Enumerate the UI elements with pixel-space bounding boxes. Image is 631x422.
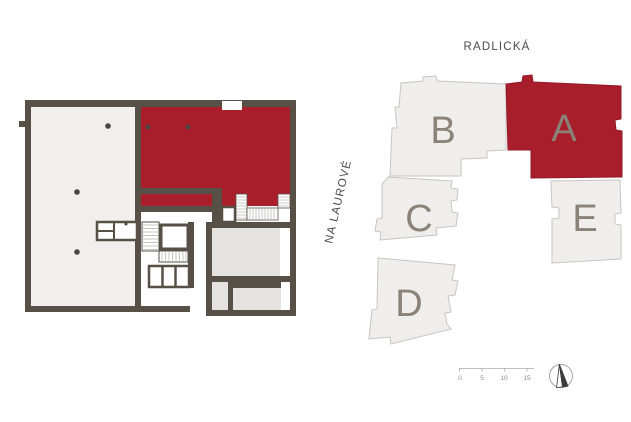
north-arrow-icon	[548, 363, 574, 389]
scale-tick-0: 0	[458, 375, 462, 382]
building-e-label: E	[572, 198, 597, 240]
elevator-shaft	[161, 225, 188, 249]
storage-cells	[149, 266, 189, 287]
scale-tick-15: 15	[523, 375, 531, 382]
scale-bar: 0 5 10 15	[458, 369, 534, 383]
building-d-label: D	[395, 283, 422, 325]
scale-tick-10: 10	[500, 375, 508, 382]
drawing: B A C D E RADLICKÁ NA LAUROVÉ 0 5 10 15	[0, 0, 631, 422]
small-room	[222, 207, 235, 222]
large-room	[31, 107, 135, 306]
utility-rooms	[97, 222, 137, 240]
site-plan: B A C D E RADLICKÁ NA LAUROVÉ	[322, 40, 622, 344]
page: B A C D E RADLICKÁ NA LAUROVÉ 0 5 10 15	[0, 0, 631, 422]
street-na-laurove: NA LAUROVÉ	[322, 158, 354, 244]
scale-tick-5: 5	[480, 375, 484, 382]
building-b-label: B	[430, 110, 455, 152]
floor-plan	[19, 100, 296, 316]
terrace-strip	[141, 194, 212, 206]
building-c-label: C	[405, 198, 432, 240]
door-opening	[222, 101, 242, 110]
lower-right-rooms	[212, 228, 290, 310]
street-radlicka: RADLICKÁ	[463, 40, 530, 53]
building-a-label: A	[551, 108, 577, 150]
